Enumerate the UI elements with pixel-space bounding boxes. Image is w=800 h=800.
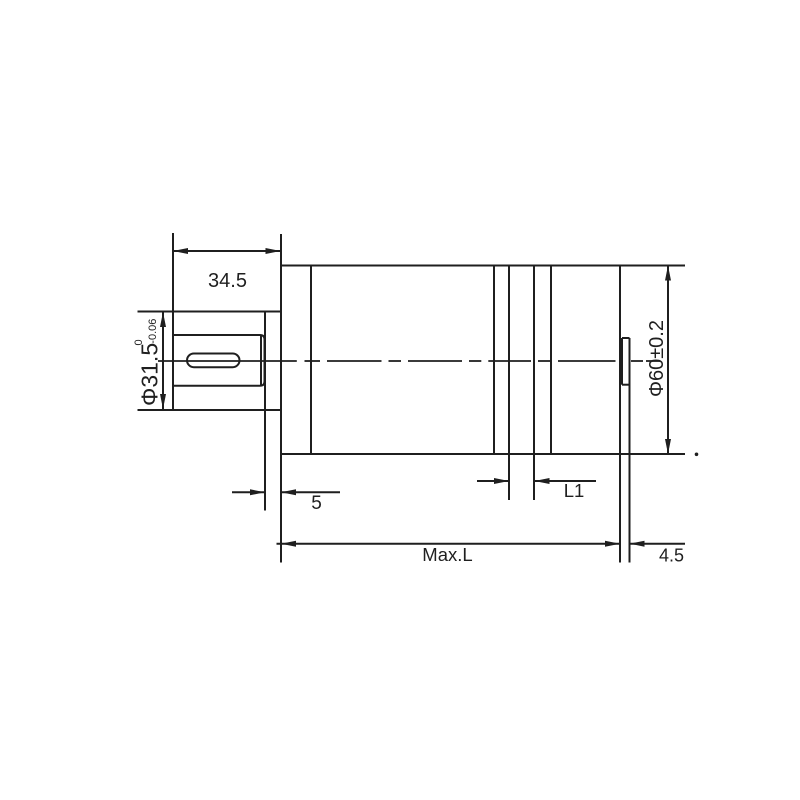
svg-text:5: 5 — [311, 493, 322, 514]
svg-text:0: 0 — [133, 339, 145, 345]
svg-text:34.5: 34.5 — [208, 270, 247, 292]
svg-text:Φ31.5: Φ31.5 — [137, 343, 163, 406]
svg-text:-0.06: -0.06 — [147, 319, 159, 344]
svg-text:4.5: 4.5 — [659, 546, 684, 566]
svg-text:L1: L1 — [564, 480, 585, 501]
svg-text:Max.L: Max.L — [422, 544, 472, 565]
svg-text:Φ60±0.2: Φ60±0.2 — [646, 320, 668, 397]
